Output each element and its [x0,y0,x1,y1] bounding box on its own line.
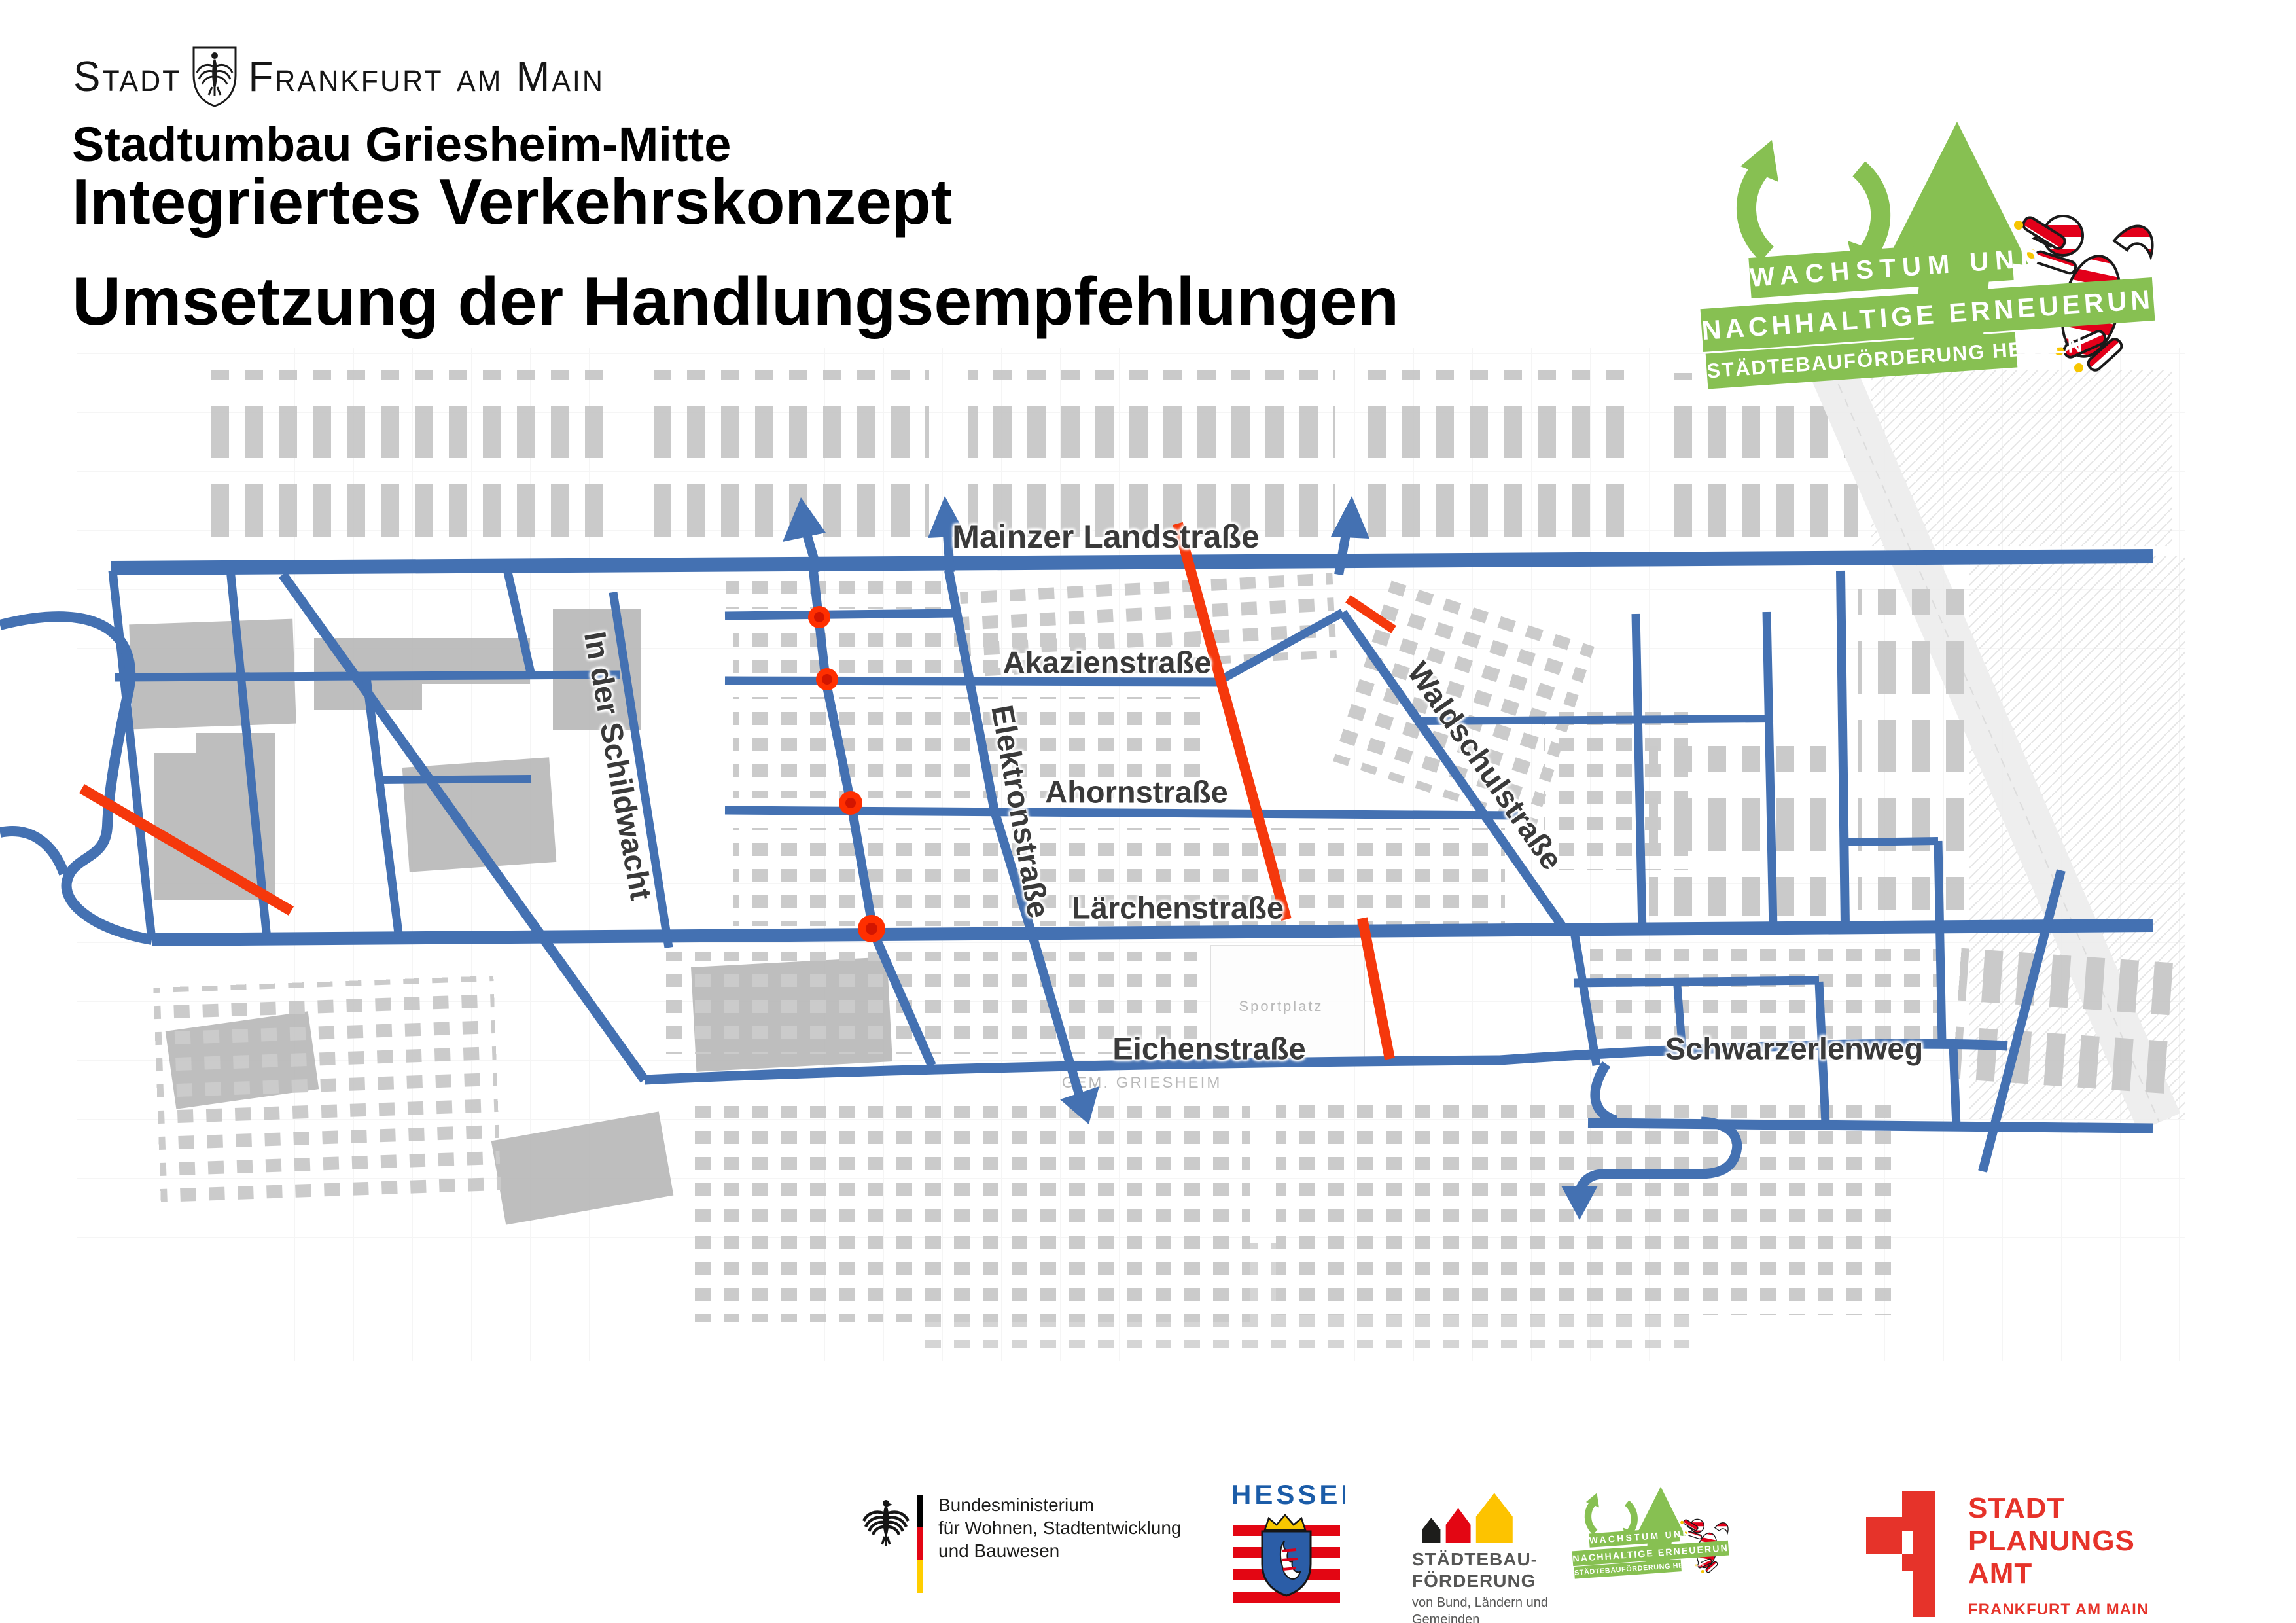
stpa-city-line: FRANKFURT AM MAIN [1968,1601,2149,1619]
bundesadler-icon [861,1496,913,1548]
sbf-line3: von Bund, Ländern und [1412,1594,1548,1611]
street-label-akazienstrasse: Akazienstraße [1003,645,1212,681]
street-label-in-der-schildwacht: In der Schildwacht [577,629,660,902]
measure-dots [808,606,885,942]
german-flag-bar [917,1495,923,1593]
bmwsb-line2: für Wohnen, Stadtentwicklung [938,1516,1181,1539]
bmwsb-line3: und Bauwesen [938,1539,1181,1562]
sbf-subtitle: von Bund, Ländern und Gemeinden [1412,1594,1548,1623]
street-label-elektronstrasse: Elektronstraße [984,702,1057,921]
hessen-wordmark: HESSEN [1231,1480,1345,1510]
stpa-line1: STADT [1968,1492,2135,1525]
hessen-coat-of-arms-icon: HESSEN [1230,1480,1345,1621]
wachstum-erneuerung-logo-small: WACHSTUM UND NACHHALTIGE ERNEUERUNG STÄD… [1563,1480,1741,1586]
basemap-label-sportplatz: Sportplatz [1239,998,1323,1015]
street-label-mainzer-landstrasse: Mainzer Landstraße [952,518,1260,556]
down-arrow-icon [1561,1186,1598,1220]
street-label-waldschulstrasse: Waldschulstraße [1400,655,1570,876]
stadtplanungsamt-logo [1866,1491,1937,1622]
bmwsb-line1: Bundesministerium [938,1493,1181,1516]
street-label-eichenstrasse: Eichenstraße [1112,1031,1305,1067]
hessen-logo: HESSEN [1230,1480,1345,1623]
up-arrow-icon [783,497,826,542]
bmwsb-logo [861,1496,913,1552]
wachstum-erneuerung-logo: WACHSTUM UND NACHHALTIGE ERNEUERUNG STÄD… [1672,103,2189,411]
stpa-wordmark: STADT PLANUNGS AMT [1968,1492,2135,1590]
street-label-ahornstrasse: Ahornstraße [1045,774,1227,810]
street-label-laerchenstrasse: Lärchenstraße [1072,890,1284,926]
basemap-label-gemarkung: GEM. GRIESHEIM [1062,1074,1222,1092]
sbf-line2: FÖRDERUNG [1412,1570,1538,1592]
stpa-line3: AMT [1968,1558,2135,1590]
three-houses-icon [1412,1491,1527,1546]
sbf-line1: STÄDTEBAU- [1412,1548,1538,1570]
bmwsb-text: Bundesministerium für Wohnen, Stadtentwi… [938,1493,1181,1562]
sbf-title: STÄDTEBAU- FÖRDERUNG [1412,1548,1538,1592]
up-arrow-icon [1331,496,1369,539]
street-label-schwarzerlenweg: Schwarzerlenweg [1665,1031,1923,1067]
sbf-line4: Gemeinden [1412,1611,1548,1623]
stpa-line2: PLANUNGS [1968,1525,2135,1558]
staedtebaufoerderung-logo [1412,1491,1527,1549]
poster-page: Stadt Frankfurt am Main Stadtumbau Gries… [0,0,2296,1623]
stpa-glyph-icon [1866,1491,1937,1618]
